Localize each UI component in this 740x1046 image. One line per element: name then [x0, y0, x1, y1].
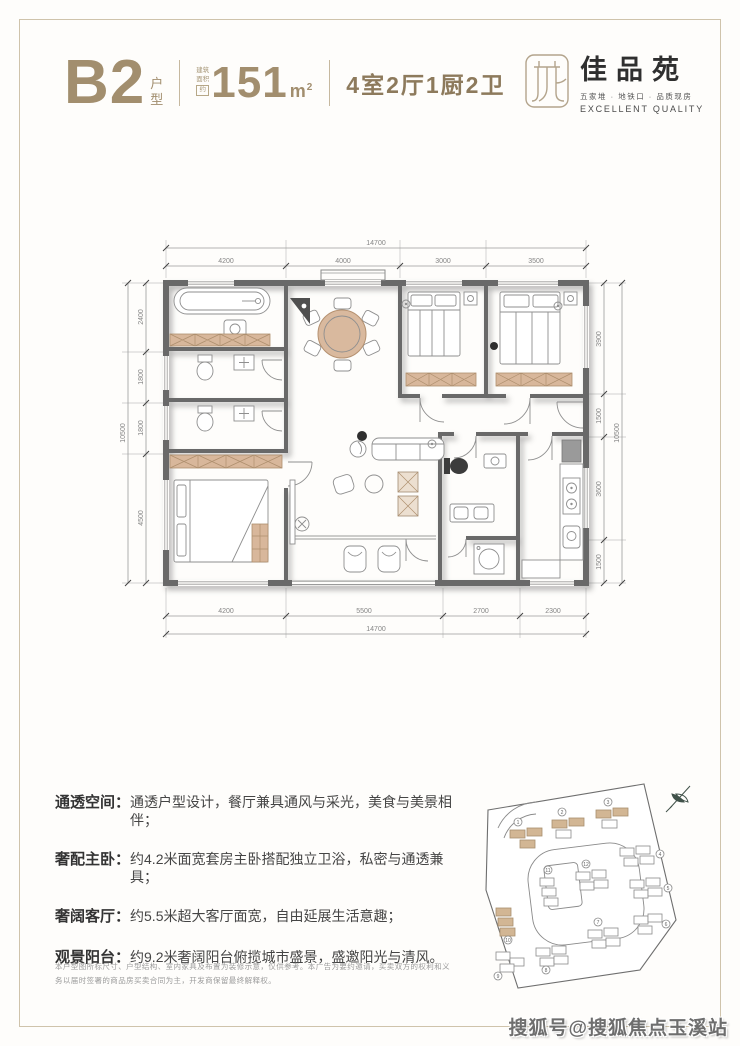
svg-text:14700: 14700 [366, 240, 386, 247]
svg-text:6: 6 [665, 922, 668, 928]
cabinet-strip [170, 334, 270, 346]
svg-text:9: 9 [497, 974, 500, 980]
header-divider-2 [329, 60, 330, 106]
svg-text:11: 11 [545, 868, 550, 874]
brand-seal-icon [524, 53, 570, 109]
bathtub [174, 288, 270, 314]
bedroom2-wardrobe [496, 373, 572, 386]
svg-text:2400: 2400 [138, 309, 145, 325]
feature-row: 奢阔客厅：约5.5米超大客厅面宽，自由延展生活意趣； [55, 908, 465, 927]
svg-text:4500: 4500 [138, 510, 145, 526]
bay-window [321, 270, 385, 280]
doors [262, 360, 583, 561]
plant [295, 517, 309, 531]
svg-text:5: 5 [667, 886, 670, 892]
disclaimer-text: 本户型图所标尺寸、户型结构、室内家具及布置为装修示意，仅供参考。本广告为要约邀请… [55, 960, 455, 987]
unit-name: B2 [64, 52, 145, 114]
svg-text:14700: 14700 [366, 626, 386, 633]
tv-console [290, 480, 295, 544]
svg-text:7: 7 [597, 920, 600, 926]
bedroom1-bed [408, 292, 477, 356]
svg-text:2700: 2700 [473, 608, 489, 615]
area-label: 建筑 面积 约 [196, 67, 209, 95]
svg-text:4000: 4000 [335, 258, 351, 265]
bathroom-ensuite [444, 454, 506, 522]
brand-tagline-cn: 五家堆 · 地铁口 · 品质现房 [580, 91, 704, 102]
svg-text:10: 10 [505, 938, 511, 944]
coffee-table [365, 472, 418, 516]
svg-text:4200: 4200 [218, 608, 234, 615]
svg-text:3600: 3600 [596, 481, 603, 497]
svg-text:10500: 10500 [614, 423, 621, 443]
svg-text:3900: 3900 [596, 331, 603, 347]
svg-text:3: 3 [607, 800, 610, 806]
unit-header: B2 户 型 建筑 面积 约 151m2 4室2厅1厨2卫 [64, 52, 505, 114]
master-dresser [252, 524, 268, 562]
armchair [332, 473, 355, 495]
brochure-page: B2 户 型 建筑 面积 约 151m2 4室2厅1厨2卫 [0, 0, 740, 1046]
svg-text:4200: 4200 [218, 258, 234, 265]
svg-text:1500: 1500 [596, 408, 603, 424]
brand-logo: 佳品苑 五家堆 · 地铁口 · 品质现房 EXCELLENT QUALITY [524, 48, 704, 114]
feature-row: 通透空间：通透户型设计，餐厅兼具通风与采光，美食与美景相伴； [55, 794, 465, 829]
bedroom1-wardrobe [406, 373, 476, 386]
sofa [350, 438, 444, 460]
area-block: 建筑 面积 约 151m2 [196, 63, 313, 103]
room-count-label: 4室2厅1厨2卫 [346, 66, 505, 100]
floor-plan-drawing: 14700 4200 4000 3000 3500 4200 5500 2700… [106, 228, 626, 658]
bedroom2-bed [490, 292, 577, 364]
svg-text:5500: 5500 [356, 608, 372, 615]
kitchen [522, 440, 583, 578]
feature-row: 奢配主卧：约4.2米面宽套房主卧搭配独立卫浴，私密与通透兼具； [55, 851, 465, 886]
toilet [197, 355, 254, 380]
site-plan: 1 2 3 4 5 6 7 [458, 768, 710, 1018]
dining-set [302, 298, 381, 371]
svg-text:12: 12 [583, 862, 589, 868]
unit-type-label: 户 型 [150, 76, 163, 109]
toilet-2 [197, 406, 254, 431]
washing-machine [474, 544, 504, 574]
area-value: 151m2 [211, 63, 313, 103]
header-divider [179, 60, 180, 106]
compass-icon [666, 786, 690, 812]
master-wardrobe [170, 455, 282, 468]
svg-text:2300: 2300 [545, 608, 561, 615]
svg-text:1800: 1800 [138, 420, 145, 436]
brand-tagline-en: EXCELLENT QUALITY [580, 104, 704, 114]
svg-text:1500: 1500 [596, 554, 603, 570]
svg-text:4: 4 [659, 852, 662, 858]
svg-text:1800: 1800 [138, 369, 145, 385]
svg-text:8: 8 [545, 968, 548, 974]
brand-text: 佳品苑 五家堆 · 地铁口 · 品质现房 EXCELLENT QUALITY [580, 48, 704, 114]
site-plan-drawing: 1 2 3 4 5 6 7 [458, 768, 710, 1013]
floor-plan: 14700 4200 4000 3000 3500 4200 5500 2700… [106, 228, 626, 663]
balcony-chairs [344, 546, 400, 572]
svg-text:1: 1 [517, 820, 520, 826]
svg-text:3000: 3000 [435, 258, 451, 265]
svg-text:10500: 10500 [120, 423, 127, 443]
brand-name: 佳品苑 [580, 48, 704, 87]
svg-text:2: 2 [561, 810, 564, 816]
svg-text:3500: 3500 [528, 258, 544, 265]
watermark: 搜狐号@搜狐焦点玉溪站 [508, 1013, 728, 1040]
